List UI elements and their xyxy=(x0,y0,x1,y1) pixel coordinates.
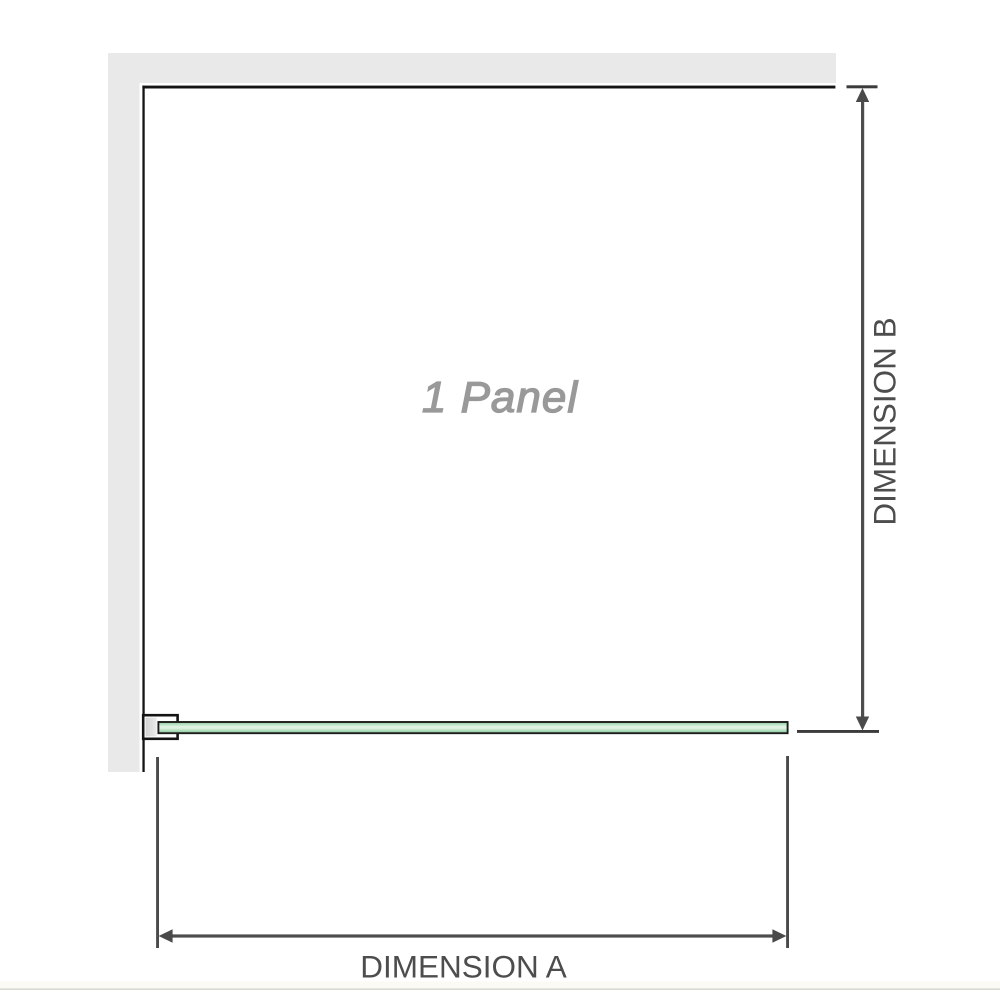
svg-text:1 Panel: 1 Panel xyxy=(422,373,578,422)
svg-text:DIMENSION B: DIMENSION B xyxy=(867,317,903,525)
svg-text:DIMENSION A: DIMENSION A xyxy=(360,949,567,985)
